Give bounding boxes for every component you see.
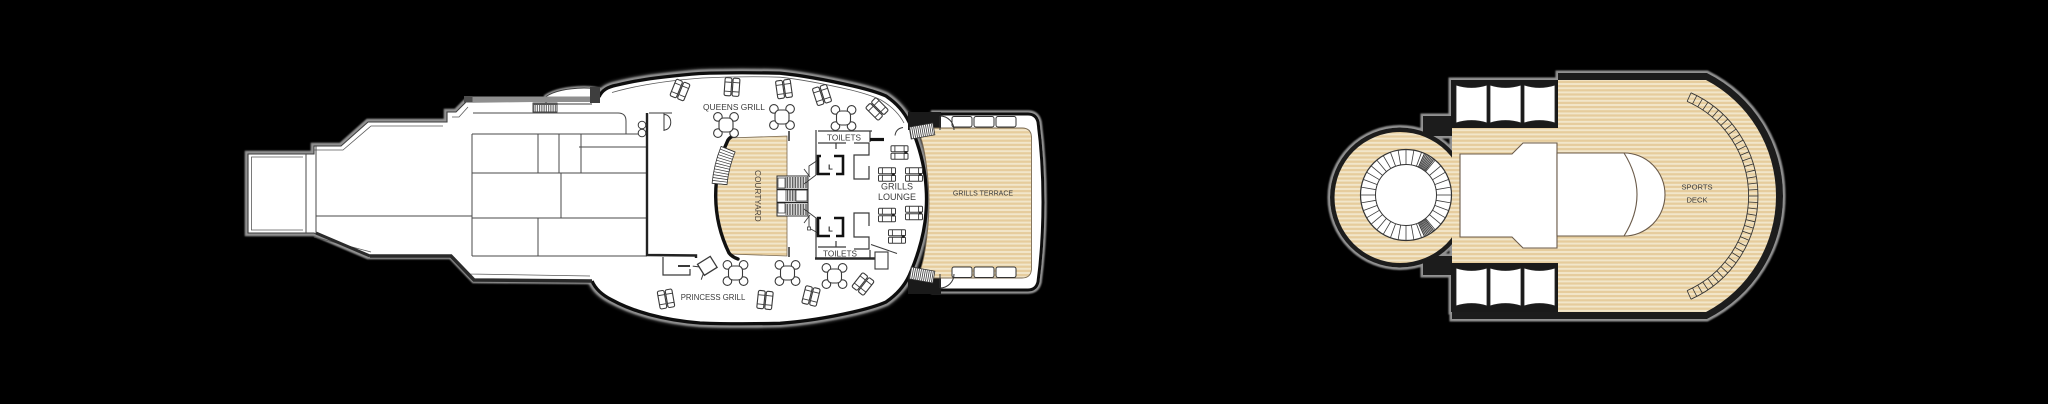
svg-text:L: L bbox=[828, 225, 833, 234]
svg-text:QUEENS GRILL: QUEENS GRILL bbox=[703, 102, 765, 112]
svg-text:TOILETS: TOILETS bbox=[823, 250, 858, 259]
svg-text:TOILETS: TOILETS bbox=[827, 134, 862, 143]
svg-text:COURTYARD: COURTYARD bbox=[753, 170, 762, 222]
svg-text:DECK: DECK bbox=[1686, 196, 1707, 205]
svg-text:PRINCESS GRILL: PRINCESS GRILL bbox=[681, 293, 746, 302]
svg-text:LOUNGE: LOUNGE bbox=[878, 192, 916, 202]
svg-text:GRILLS TERRACE: GRILLS TERRACE bbox=[953, 191, 1013, 198]
svg-text:L: L bbox=[828, 163, 833, 172]
svg-text:GRILLS: GRILLS bbox=[881, 182, 913, 192]
svg-text:SPORTS: SPORTS bbox=[1681, 183, 1712, 192]
